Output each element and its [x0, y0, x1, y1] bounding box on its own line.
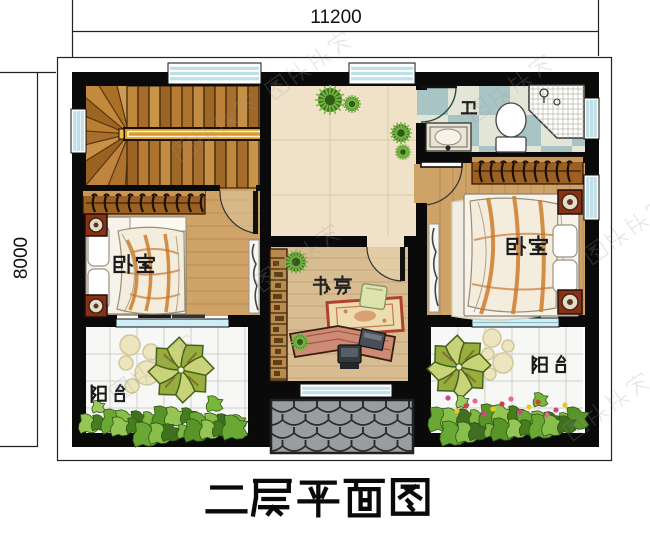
svg-text:11200: 11200 — [310, 7, 361, 28]
svg-text:8000: 8000 — [11, 237, 32, 279]
